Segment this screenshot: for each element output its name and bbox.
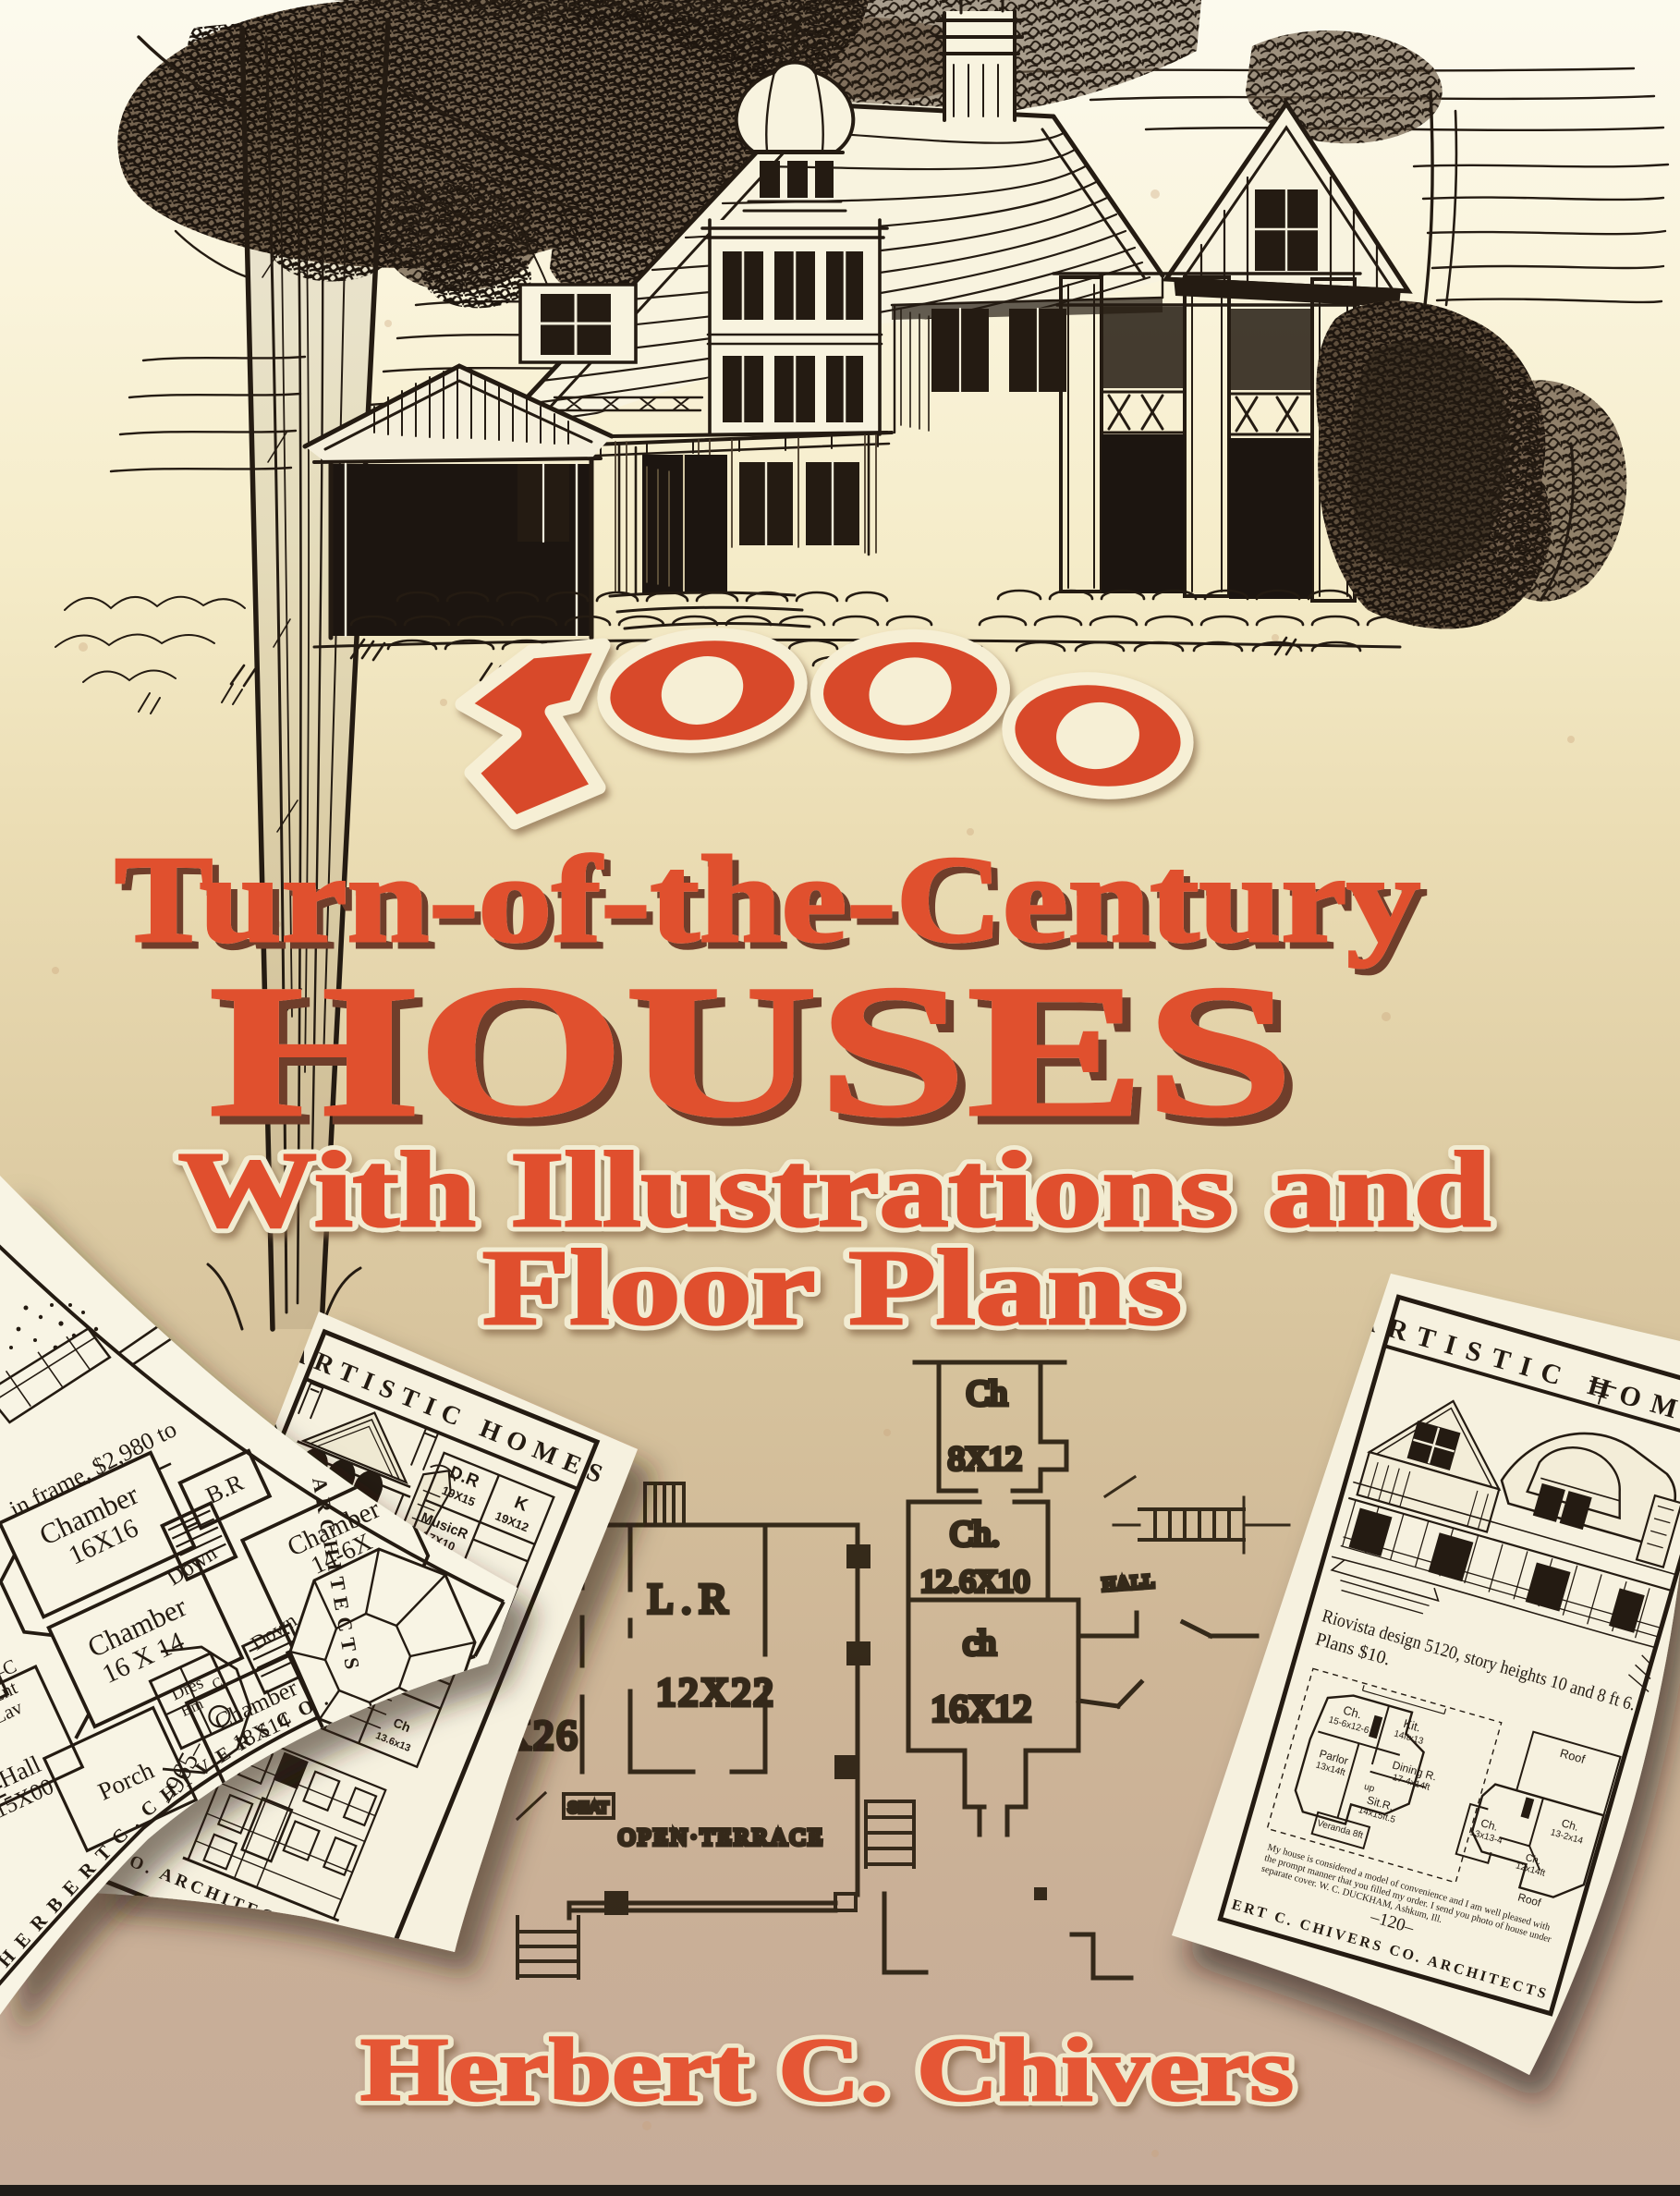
- svg-text:16X12: 16X12: [931, 1688, 1032, 1729]
- svg-text:Floor Plans: Floor Plans: [482, 1229, 1182, 1348]
- svg-text:12X22: 12X22: [656, 1672, 775, 1714]
- svg-text:Ch.: Ch.: [950, 1515, 1000, 1554]
- svg-text:OPEN·TERRACE: OPEN·TERRACE: [618, 1825, 825, 1850]
- svg-text:SEAT: SEAT: [568, 1800, 610, 1816]
- svg-text:12.6X10: 12.6X10: [920, 1565, 1029, 1599]
- svg-text:HALL: HALL: [1102, 1571, 1156, 1595]
- svg-text:Ch: Ch: [967, 1374, 1007, 1413]
- svg-text:L.R: L.R: [648, 1575, 735, 1622]
- svg-text:8X12: 8X12: [948, 1440, 1022, 1477]
- svg-text:Herbert C. Chivers: Herbert C. Chivers: [360, 2020, 1294, 2119]
- svg-text:HOUSES: HOUSES: [209, 946, 1294, 1156]
- svg-text:ch: ch: [963, 1624, 996, 1663]
